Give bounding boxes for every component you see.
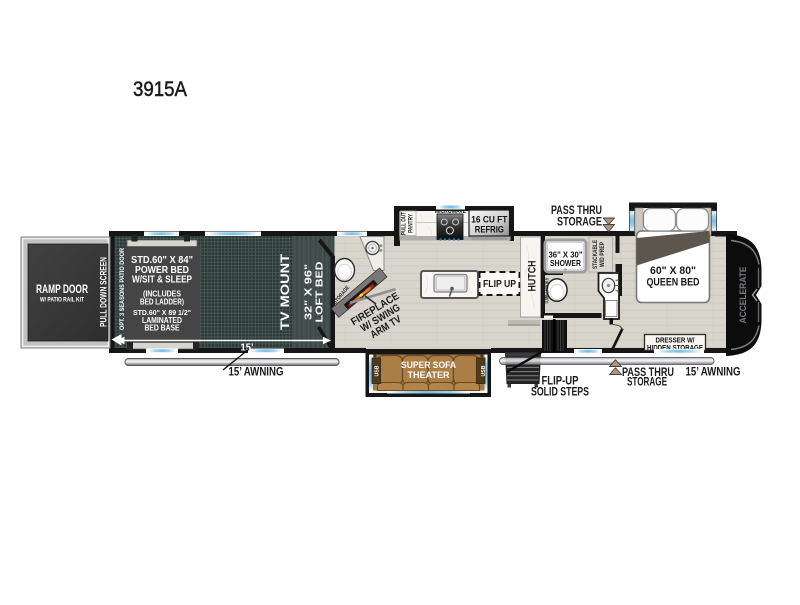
svg-text:FLIP UP: FLIP UP: [483, 279, 516, 290]
svg-text:3915A: 3915A: [133, 78, 187, 101]
svg-text:PULL OUT: PULL OUT: [401, 212, 408, 235]
svg-text:QUEEN BED: QUEEN BED: [647, 277, 700, 289]
svg-text:PULL DOWN SCREEN: PULL DOWN SCREEN: [99, 257, 109, 327]
svg-text:STORAGE: STORAGE: [557, 217, 602, 229]
svg-text:STORAGE: STORAGE: [627, 377, 667, 389]
svg-text:RAMP DOOR: RAMP DOOR: [36, 284, 88, 296]
svg-text:THEATER: THEATER: [408, 370, 450, 381]
svg-text:15’ AWNING: 15’ AWNING: [229, 367, 284, 379]
svg-text:OPT. 3 SEASONS PATIO DOOR: OPT. 3 SEASONS PATIO DOOR: [119, 248, 126, 330]
svg-text:HUTCH: HUTCH: [527, 260, 539, 291]
svg-text:SHOWER: SHOWER: [550, 258, 581, 268]
svg-text:W/D PREP: W/D PREP: [599, 242, 606, 267]
svg-text:BED LADDER): BED LADDER): [140, 298, 184, 307]
svg-text:W/ PATIO RAIL KIT: W/ PATIO RAIL KIT: [40, 297, 84, 304]
svg-text:REFRIG: REFRIG: [475, 225, 504, 236]
svg-text:W/SIT & SLEEP: W/SIT & SLEEP: [132, 275, 192, 286]
svg-text:USB: USB: [374, 366, 380, 377]
svg-text:STACKABLE: STACKABLE: [592, 240, 599, 269]
svg-text:USB: USB: [481, 366, 487, 377]
svg-text:TOWELHOOKS: TOWELHOOKS: [545, 278, 551, 304]
svg-text:60" X 80": 60" X 80": [650, 265, 696, 277]
svg-text:TV MOUNT: TV MOUNT: [280, 254, 292, 330]
svg-text:LOFT BED: LOFT BED: [314, 261, 326, 322]
svg-text:BED BASE: BED BASE: [145, 324, 180, 333]
svg-text:ACCELERATE: ACCELERATE: [738, 267, 749, 324]
svg-text:15’ AWNING: 15’ AWNING: [686, 367, 741, 379]
svg-text:SOLID STEPS: SOLID STEPS: [531, 387, 589, 399]
svg-text:PANTRY: PANTRY: [408, 214, 415, 233]
svg-text:PASS THRU: PASS THRU: [551, 205, 602, 217]
